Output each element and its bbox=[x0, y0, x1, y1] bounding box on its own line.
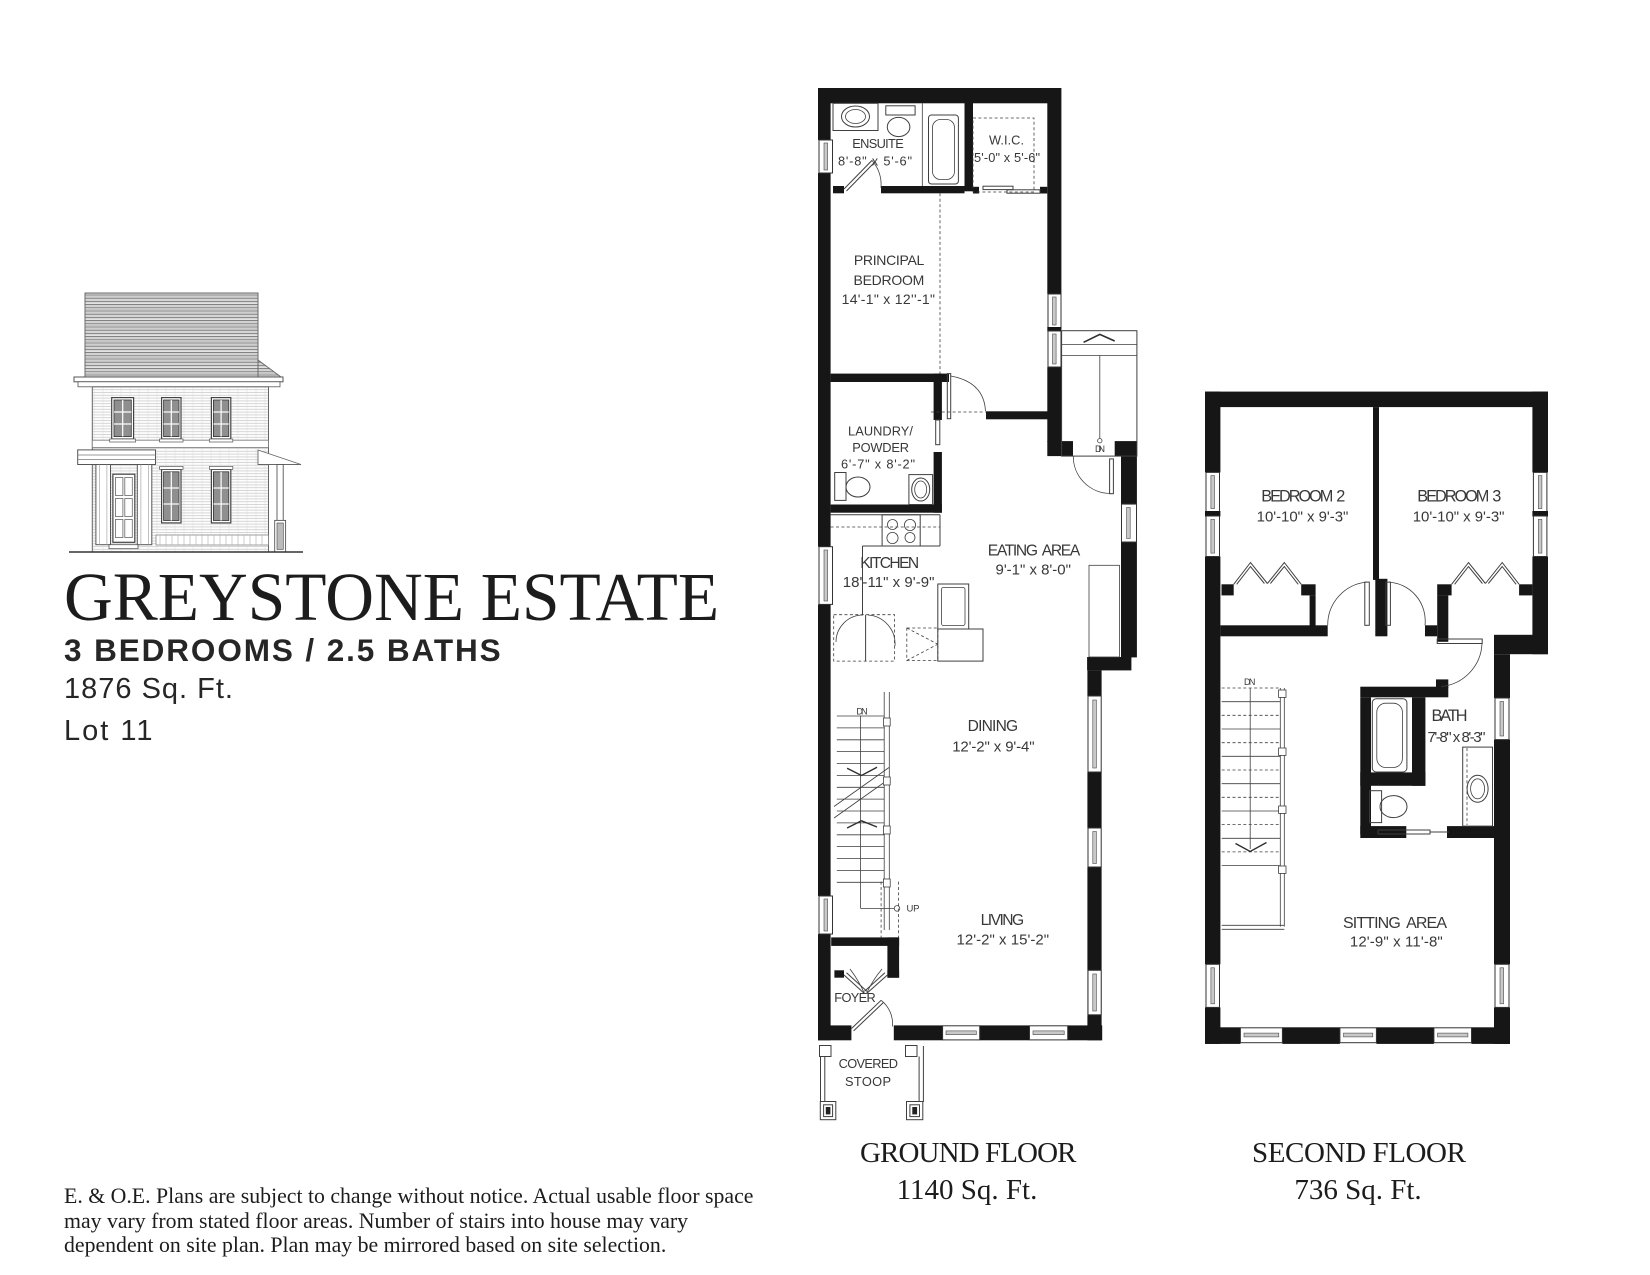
svg-text:10'-10" x 9'-3": 10'-10" x 9'-3" bbox=[1413, 509, 1505, 526]
svg-text:LAUNDRY/: LAUNDRY/ bbox=[848, 424, 913, 439]
svg-text:14'-1" x 12''-1": 14'-1" x 12''-1" bbox=[842, 291, 935, 307]
svg-text:DN: DN bbox=[1095, 444, 1105, 454]
svg-text:STOOP: STOOP bbox=[845, 1074, 891, 1089]
svg-text:BEDROOM: BEDROOM bbox=[854, 272, 925, 288]
svg-text:PRINCIPAL: PRINCIPAL bbox=[854, 252, 925, 268]
svg-text:12'-2" x 9'-4": 12'-2" x 9'-4" bbox=[952, 739, 1034, 756]
svg-text:EATING AREA: EATING AREA bbox=[988, 543, 1081, 560]
svg-text:10'-10" x 9'-3": 10'-10" x 9'-3" bbox=[1257, 509, 1349, 526]
svg-text:BEDROOM 3: BEDROOM 3 bbox=[1417, 488, 1501, 506]
svg-text:DN: DN bbox=[856, 707, 867, 717]
svg-text:POWDER: POWDER bbox=[852, 440, 909, 455]
svg-text:SITTING AREA: SITTING AREA bbox=[1343, 915, 1447, 932]
svg-text:BATH: BATH bbox=[1432, 707, 1468, 725]
svg-text:BEDROOM 2: BEDROOM 2 bbox=[1261, 488, 1345, 506]
svg-text:COVERED: COVERED bbox=[839, 1056, 898, 1071]
svg-text:DINING: DINING bbox=[968, 718, 1019, 735]
svg-text:18'-11" x 9'-9": 18'-11" x 9'-9" bbox=[843, 574, 935, 591]
svg-text:DN: DN bbox=[1244, 677, 1255, 687]
svg-text:UP: UP bbox=[907, 904, 920, 915]
svg-text:LIVING: LIVING bbox=[981, 912, 1025, 929]
svg-text:6'-7" x 8'-2": 6'-7" x 8'-2" bbox=[841, 456, 915, 471]
svg-text:12'-9" x 11'-8": 12'-9" x 11'-8" bbox=[1350, 934, 1443, 951]
svg-text:5'-0" x 5'-6": 5'-0" x 5'-6" bbox=[974, 150, 1040, 165]
svg-text:W.I.C.: W.I.C. bbox=[989, 133, 1024, 148]
svg-text:9'-1" x 8'-0": 9'-1" x 8'-0" bbox=[996, 561, 1071, 578]
svg-text:ENSUITE: ENSUITE bbox=[852, 136, 904, 151]
svg-text:8'-8" x 5'-6": 8'-8" x 5'-6" bbox=[838, 154, 912, 169]
svg-text:KITCHEN: KITCHEN bbox=[860, 555, 919, 572]
svg-text:12'-2" x 15'-2": 12'-2" x 15'-2" bbox=[957, 932, 1050, 949]
svg-text:FOYER: FOYER bbox=[834, 990, 875, 1005]
svg-text:7'-8" x 8'-3": 7'-8" x 8'-3" bbox=[1428, 729, 1486, 746]
